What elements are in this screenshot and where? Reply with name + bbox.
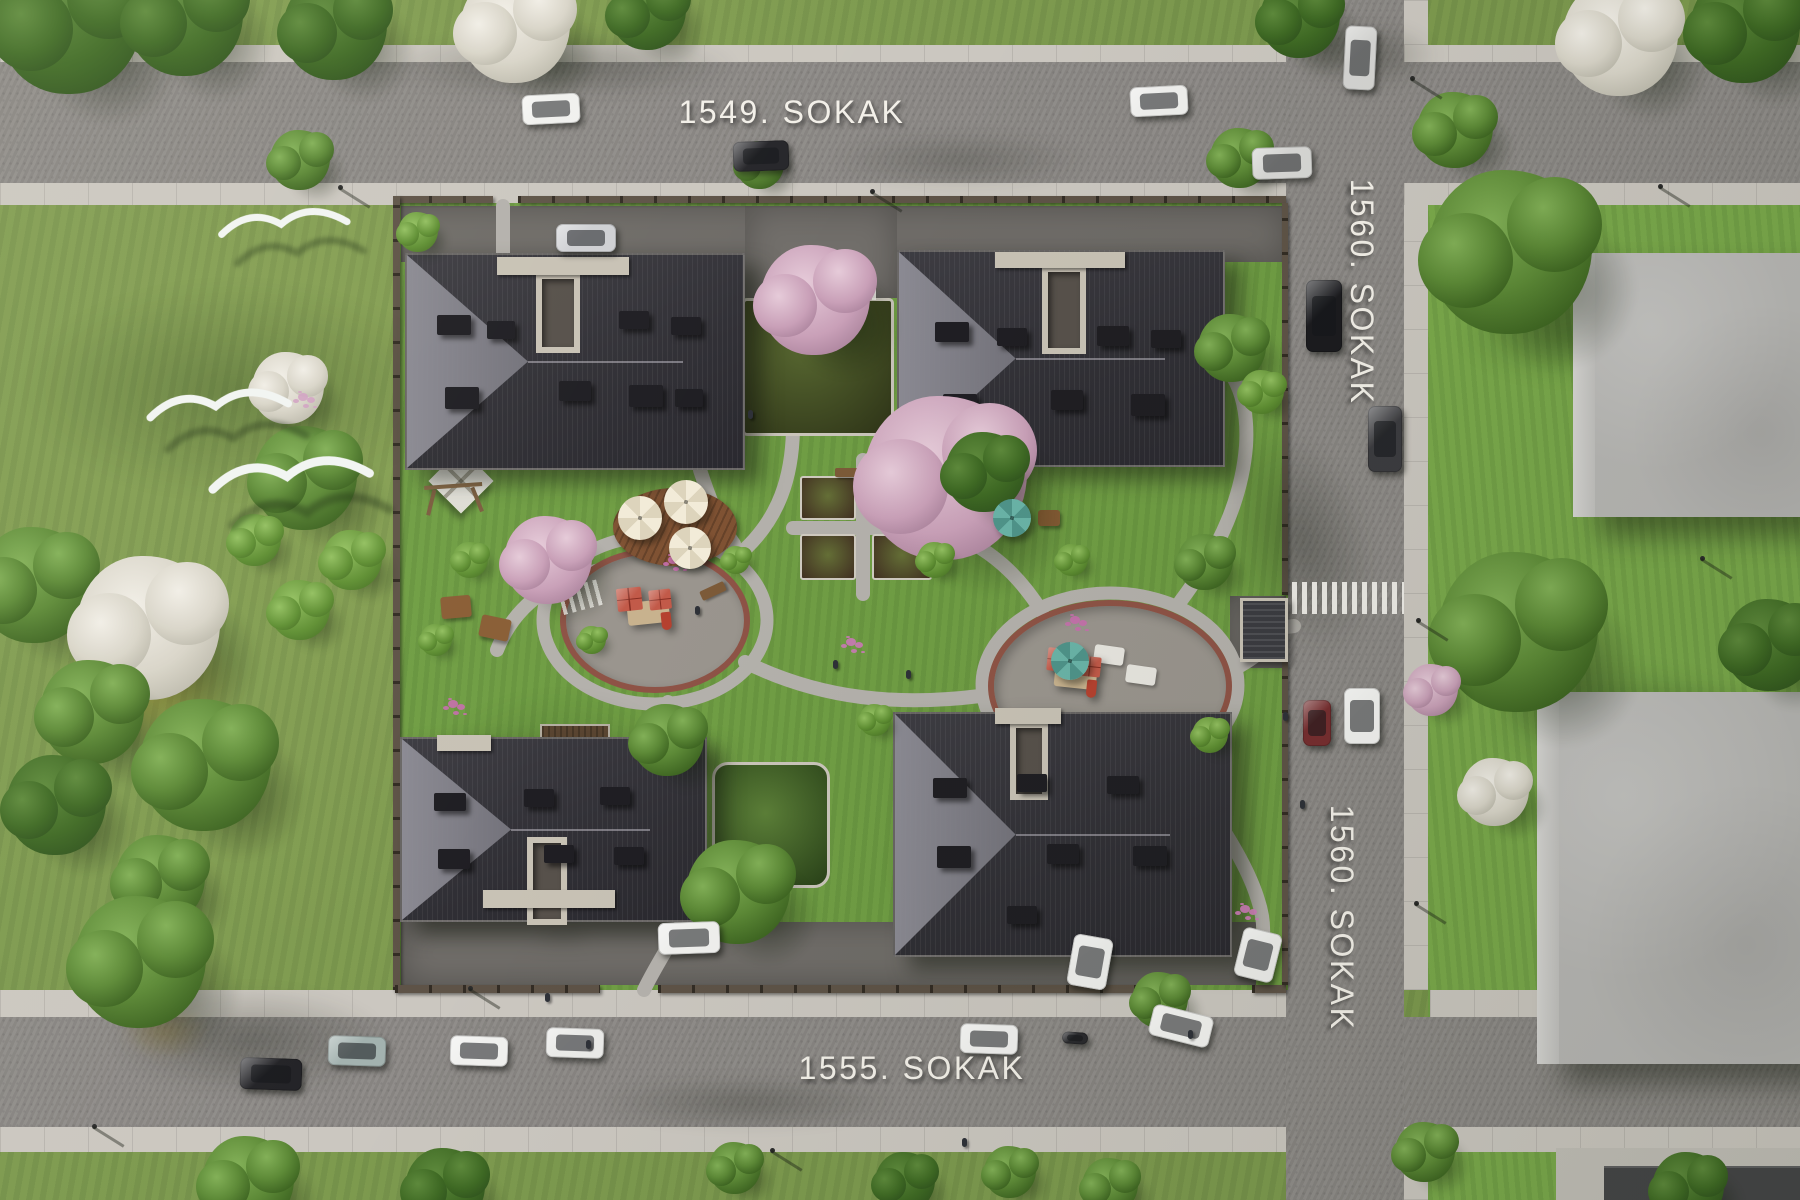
bird-wing [220, 209, 347, 234]
bird-icon [214, 195, 357, 251]
birds-layer [0, 0, 1800, 1200]
bird-icon [203, 440, 382, 510]
aerial-site-plan: 1549. SOKAK 1555. SOKAK 1560. SOKAK 1560… [0, 0, 1800, 1200]
bird-icon [141, 374, 298, 435]
bird-wing [211, 458, 370, 490]
bird-wing [149, 390, 289, 418]
